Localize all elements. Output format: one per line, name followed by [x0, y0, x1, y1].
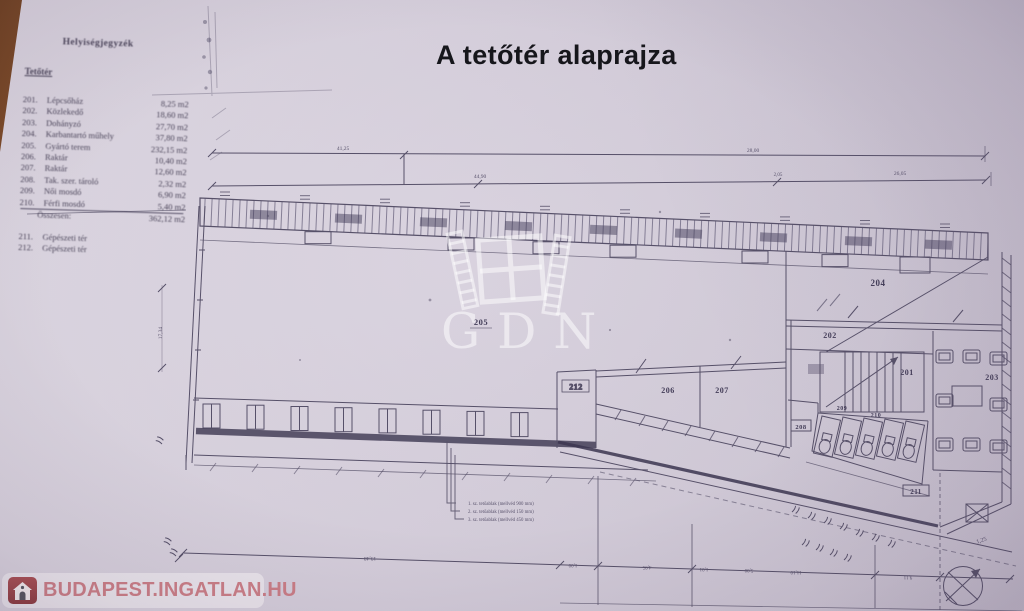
dim-2-05: 2,05: [774, 173, 783, 178]
room-label-201: 201: [900, 368, 914, 377]
room-label-209: 209: [837, 406, 848, 412]
photo-of-floorplan: { "title": "A tetőtér alaprajza", "room_…: [0, 0, 1024, 611]
north-wall: [200, 192, 988, 274]
room-label-208: 208: [795, 424, 807, 431]
toilet-stalls: 208 209 210 211 1,25: [788, 400, 988, 546]
dim-b6: 9,11: [903, 574, 912, 579]
handwritten-dims: [155, 437, 895, 562]
legend-line-1: 1. sz. tetőablak (mellvéd 900 mm): [468, 502, 534, 507]
dim-b2: 4,95: [642, 564, 651, 569]
roof-windows-row: [194, 398, 656, 486]
gdn-watermark-text: GDN: [441, 303, 661, 360]
eave-ticks: [210, 463, 636, 486]
house-icon: [8, 577, 37, 604]
page-title: A tetőtér alaprajza: [436, 40, 677, 71]
room-list-rows: 201.Lépcsőház8,25 m2 202.Közlekedő18,60 …: [18, 94, 189, 258]
dim-17-34: 17,34: [158, 327, 164, 340]
left-dimension: 17,34: [158, 284, 166, 372]
smudge-dots: [202, 20, 212, 90]
dim-b4: 5,00: [744, 567, 753, 572]
room-list-section: Tetőtér: [25, 66, 53, 77]
room-label-210: 210: [871, 413, 882, 419]
legend-line-2: 2. sz. tetőablak (mellvéd 150 mm): [468, 510, 534, 515]
dim-19-48: 19,48: [364, 555, 377, 561]
dim-44-90: 44,90: [474, 174, 487, 180]
staircase: 201: [820, 352, 924, 412]
north-arrow-icon: [944, 567, 983, 606]
dim-b3: 1,01: [699, 566, 708, 571]
roof-edge-diagonals: [558, 442, 1016, 566]
room-label-207: 207: [715, 386, 729, 395]
room-label-202: 202: [823, 331, 837, 340]
room-label-211: 211: [910, 488, 922, 496]
room-label-206: 206: [661, 386, 675, 395]
room-list-heading: Helyiségjegyzék: [62, 37, 133, 49]
dim-26-05: 26,05: [894, 171, 907, 177]
room-label-203: 203: [985, 373, 999, 382]
dim-41-25: 41,25: [337, 146, 350, 152]
dim-b1: 1,00: [568, 562, 577, 567]
room-label-204: 204: [871, 278, 886, 288]
room-label-212: 212: [569, 383, 583, 392]
extra-rooms: 211.Gépészeti tér 212.Gépészeti tér: [18, 230, 185, 258]
dim-28-00: 28,00: [747, 148, 760, 154]
right-outer-wall: [940, 252, 1011, 534]
site-watermark: BUDAPEST.INGATLAN.HU: [2, 573, 264, 608]
room-list: Helyiségjegyzék Tetőtér 201.Lépcsőház8,2…: [14, 30, 199, 275]
legend-line-3: 3. sz. tetőablak (mellvéd 450 mm): [468, 518, 534, 523]
rooms-206-207: 206 207: [596, 356, 790, 458]
top-dimension-lines: 41,25 28,00 44,90 2,05 26,05: [208, 146, 991, 190]
dim-b5: 11,10: [790, 569, 802, 574]
extension-lines: [598, 473, 940, 610]
room-212: 212: [557, 370, 596, 448]
furniture: [936, 350, 1007, 453]
legend: 1. sz. tetőablak (mellvéd 900 mm) 2. sz.…: [447, 441, 534, 523]
site-watermark-text: BUDAPEST.INGATLAN.HU: [43, 579, 297, 602]
